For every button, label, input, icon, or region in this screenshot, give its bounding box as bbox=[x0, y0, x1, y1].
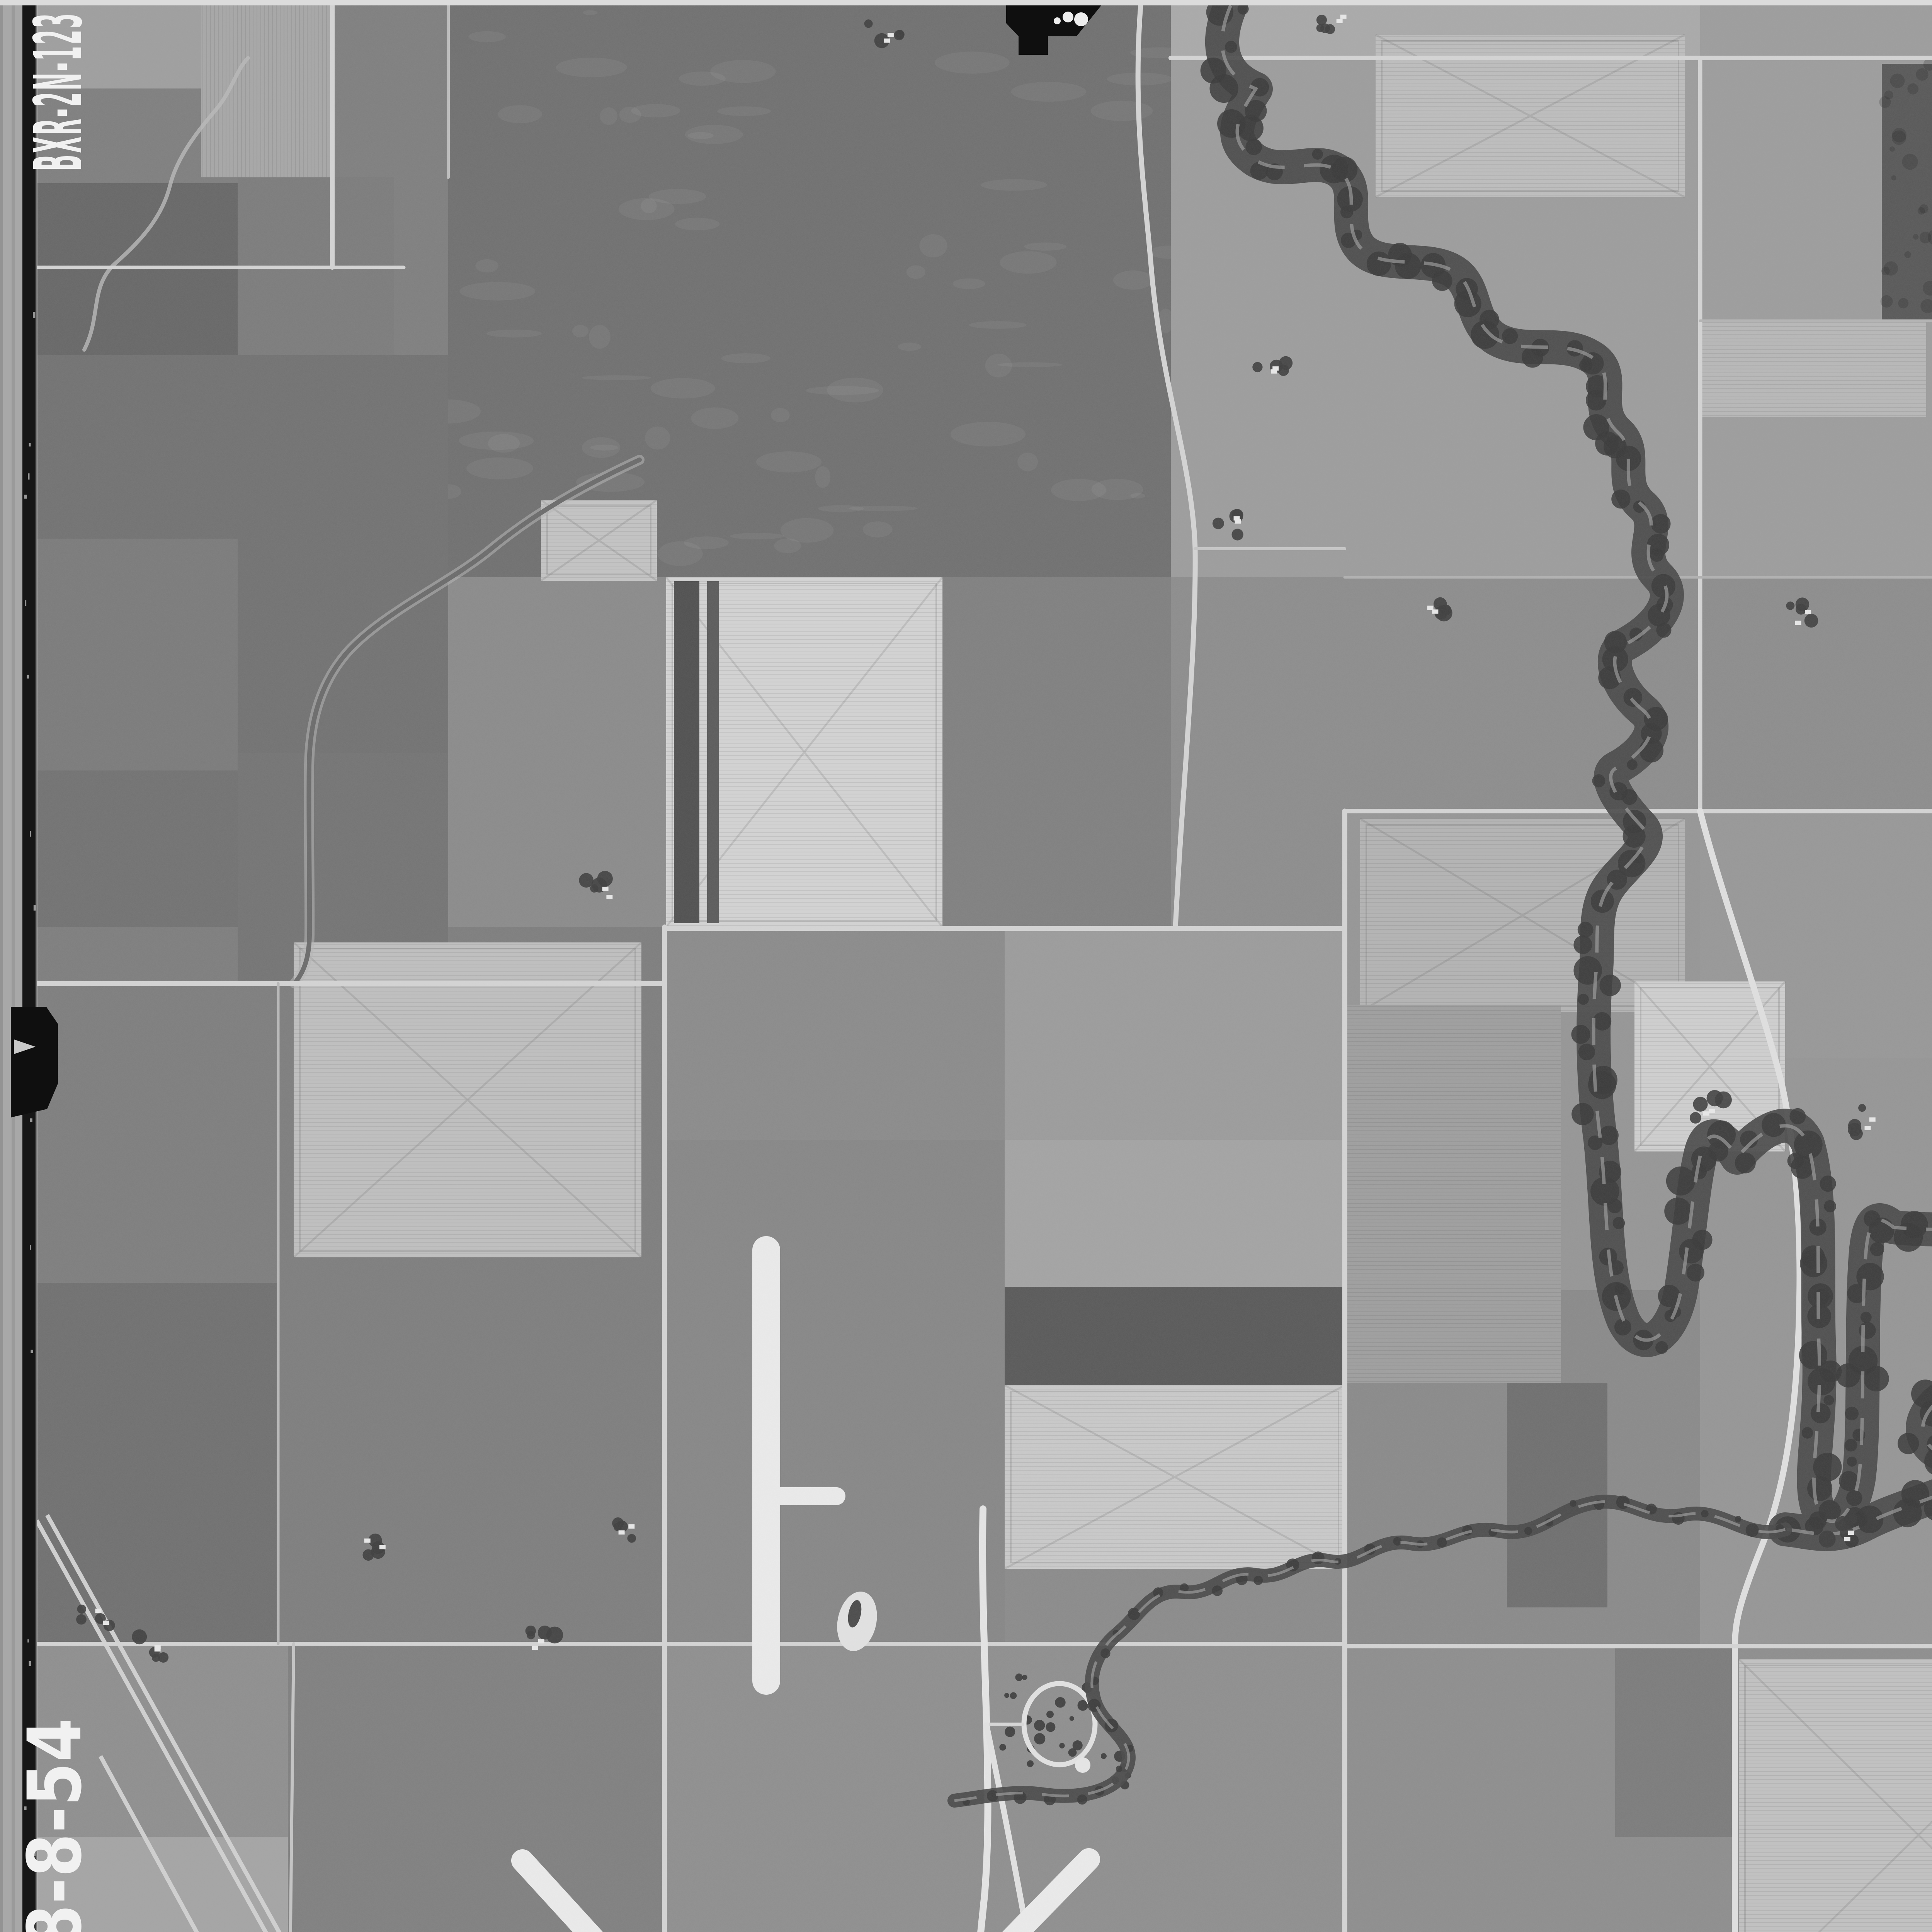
margin-strip-left bbox=[0, 0, 22, 1932]
film-edge-left bbox=[22, 0, 37, 1932]
dust-speck bbox=[31, 1350, 33, 1353]
dust-speck bbox=[30, 1118, 32, 1122]
dust-speck bbox=[25, 600, 26, 606]
dust-speck bbox=[27, 1639, 29, 1642]
dust-speck bbox=[27, 675, 29, 679]
film-grain bbox=[37, 5, 1932, 1932]
dust-speck bbox=[34, 905, 36, 910]
dust-speck bbox=[29, 443, 31, 446]
film-edge-highlight bbox=[36, 5, 37, 1932]
aerial-photo-scan: BXR-2N-123 8-8-54 bbox=[0, 0, 1932, 1932]
photo-id-label: BXR-2N-123 bbox=[20, 12, 97, 171]
fiducial-top-mark-dot bbox=[1054, 17, 1061, 24]
photo-area bbox=[37, 0, 1932, 1932]
photo-date-label: 8-8-54 bbox=[12, 1718, 98, 1932]
fiducial-top-mark-dot bbox=[1063, 12, 1073, 22]
margin-streak bbox=[0, 0, 3, 1932]
dust-speck bbox=[24, 495, 27, 498]
dust-speck bbox=[29, 1661, 31, 1666]
dust-speck bbox=[28, 473, 29, 480]
margin-streak bbox=[12, 0, 15, 1932]
fiducial-top-mark-dot bbox=[1074, 12, 1088, 26]
dust-speck bbox=[33, 312, 35, 318]
margin-strip-top bbox=[0, 0, 1932, 5]
dust-speck bbox=[30, 831, 31, 837]
dust-speck bbox=[30, 1245, 31, 1250]
